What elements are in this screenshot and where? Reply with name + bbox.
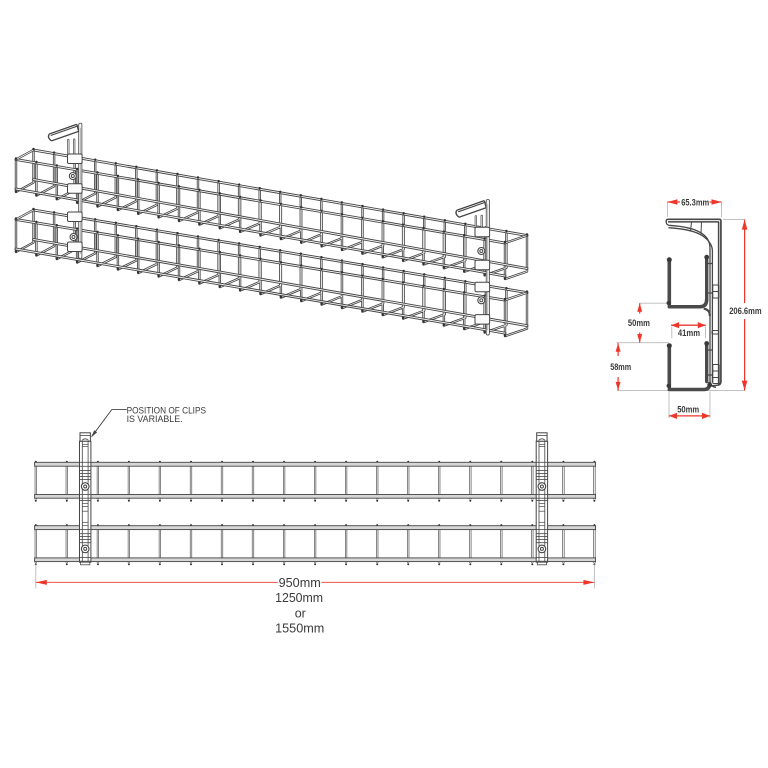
svg-text:1250mm: 1250mm: [275, 591, 323, 605]
svg-text:or: or: [295, 606, 306, 620]
svg-text:58mm: 58mm: [610, 362, 631, 372]
svg-text:50mm: 50mm: [628, 318, 650, 328]
svg-text:IS VARIABLE.: IS VARIABLE.: [127, 414, 183, 424]
svg-text:50mm: 50mm: [677, 404, 699, 414]
svg-text:1550mm: 1550mm: [275, 622, 324, 636]
svg-text:950mm: 950mm: [279, 576, 321, 590]
svg-text:65.3mm: 65.3mm: [681, 197, 709, 207]
svg-text:206.6mm: 206.6mm: [729, 306, 761, 316]
svg-text:41mm: 41mm: [678, 328, 700, 338]
